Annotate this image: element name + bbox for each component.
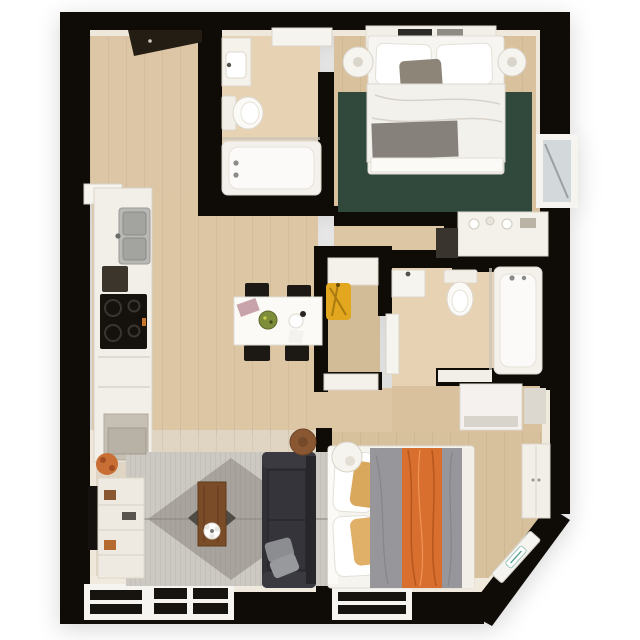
tub-faucet-icon bbox=[509, 275, 514, 280]
bathroom2-door bbox=[386, 314, 399, 374]
sofa bbox=[262, 452, 316, 588]
room-living bbox=[88, 428, 334, 588]
nightstand-right bbox=[498, 48, 526, 76]
faucet-icon bbox=[115, 233, 120, 238]
dresser bbox=[458, 212, 548, 256]
drawer-line bbox=[98, 386, 150, 388]
cooktop bbox=[100, 294, 147, 349]
floor-plan-canvas bbox=[0, 0, 640, 640]
dining-chair bbox=[245, 283, 269, 298]
wall-tv bbox=[88, 486, 98, 550]
cup bbox=[300, 311, 306, 317]
lamp-icon bbox=[353, 57, 363, 67]
handle-icon bbox=[532, 479, 535, 482]
decor-vase bbox=[486, 217, 494, 225]
dark-stool bbox=[436, 228, 458, 258]
apartment-floor-plan bbox=[0, 0, 640, 640]
bed-footer bbox=[371, 158, 503, 172]
bathtub bbox=[494, 267, 542, 374]
lamp-icon bbox=[507, 57, 517, 67]
bed-footer bbox=[462, 448, 474, 588]
dining-chair bbox=[285, 345, 309, 361]
yellow-jacket bbox=[326, 283, 351, 320]
shelf-item bbox=[104, 540, 116, 550]
nightstand-round bbox=[332, 442, 362, 472]
window-living-left bbox=[84, 584, 148, 620]
shelf-item bbox=[122, 512, 136, 520]
glass-screen bbox=[489, 268, 492, 374]
tub-drain-icon bbox=[233, 172, 238, 177]
napkin bbox=[288, 329, 304, 344]
decor-box bbox=[520, 218, 536, 228]
wall-right-lower bbox=[550, 386, 570, 514]
closet-door bbox=[324, 374, 378, 390]
wardrobe-handle bbox=[148, 39, 152, 43]
coffee-table bbox=[198, 482, 226, 546]
handle-icon bbox=[538, 479, 541, 482]
media-shelf bbox=[98, 478, 144, 578]
sofa-cushion bbox=[268, 470, 306, 520]
drawer-line bbox=[98, 356, 150, 358]
kitchen-sink bbox=[115, 208, 150, 264]
orange-throw bbox=[402, 448, 442, 588]
room-kitchen bbox=[94, 188, 152, 462]
glass-screen bbox=[222, 137, 320, 140]
shelf-item bbox=[104, 490, 116, 500]
kitchen-appliance bbox=[102, 266, 128, 292]
tub-drain-icon bbox=[522, 276, 526, 280]
wardrobe bbox=[522, 444, 550, 518]
hanger-icon bbox=[336, 283, 340, 287]
console-cabinet bbox=[108, 428, 146, 454]
wall-left bbox=[60, 12, 90, 624]
hall-bedroom2-floor bbox=[318, 388, 394, 434]
nightstand-left bbox=[343, 47, 373, 77]
window-living-right bbox=[148, 582, 234, 620]
cooktop-knob bbox=[142, 318, 146, 326]
pillow bbox=[436, 43, 492, 86]
bathroom1-door bbox=[272, 28, 332, 46]
sofa-back bbox=[306, 456, 316, 584]
closet-shelf bbox=[328, 258, 378, 285]
wall-right-upper bbox=[540, 12, 570, 138]
faucet-icon bbox=[406, 272, 411, 277]
decor-vase bbox=[469, 219, 479, 229]
lamp-icon bbox=[345, 456, 355, 466]
wall-bath1-left bbox=[198, 12, 222, 216]
bed-double bbox=[367, 36, 505, 174]
vanity-sink bbox=[222, 38, 251, 86]
wall-bath1-bottom bbox=[198, 192, 334, 216]
salad-bowl bbox=[259, 311, 277, 329]
window-bedroom2 bbox=[332, 586, 412, 620]
tub-faucet-icon bbox=[233, 160, 238, 165]
bathtub bbox=[222, 141, 321, 195]
counter-shelf bbox=[438, 370, 492, 382]
window-bedroom1-side bbox=[536, 134, 578, 208]
gray-throw bbox=[371, 121, 458, 160]
decor-vase bbox=[502, 219, 512, 229]
wall-sink bbox=[392, 270, 425, 297]
dining-chair bbox=[244, 345, 270, 361]
side-table-round bbox=[290, 429, 316, 455]
plant-orange bbox=[96, 453, 118, 475]
side-shelf bbox=[524, 388, 546, 424]
cabinet-front bbox=[464, 416, 518, 427]
toilet bbox=[222, 96, 263, 130]
storage-cabinet bbox=[460, 384, 522, 430]
faucet-icon bbox=[227, 63, 231, 67]
flower-vase bbox=[204, 523, 220, 539]
